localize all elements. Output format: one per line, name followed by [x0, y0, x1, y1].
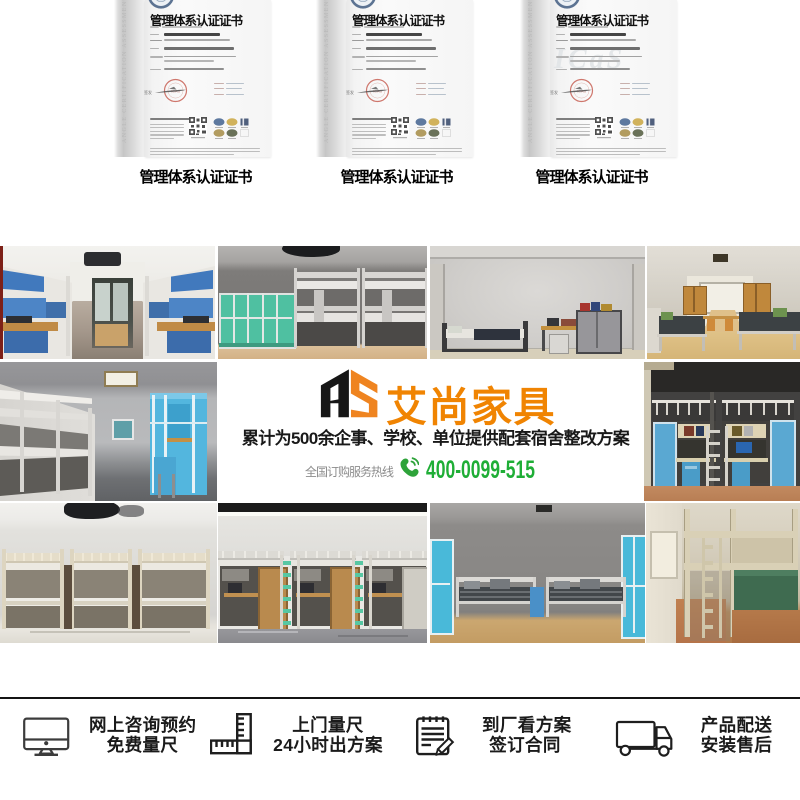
svg-text:签发: 签发 [144, 89, 152, 95]
svg-text:签发: 签发 [550, 89, 558, 95]
svg-text:签发: 签发 [346, 89, 354, 95]
